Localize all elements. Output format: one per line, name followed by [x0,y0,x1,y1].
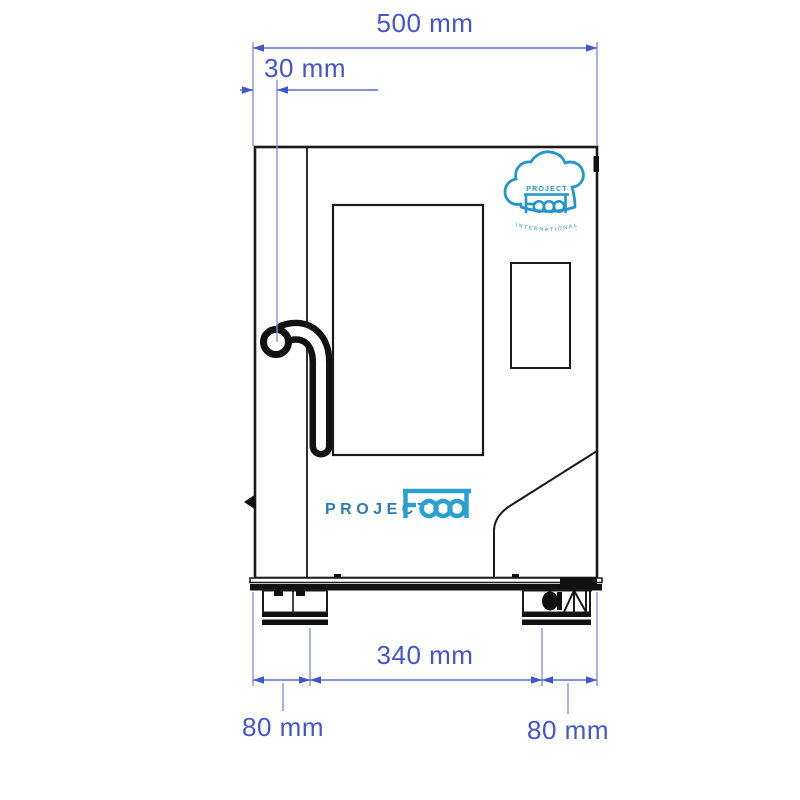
dimension-label-total-width: 500 mm [330,8,520,39]
oven-linework [244,147,602,625]
right-foot [522,591,592,626]
technical-drawing: PROJECT INTERNATIONAL PROJECT [0,0,800,800]
oven-side-view-drawing: PROJECT INTERNATIONAL PROJECT [0,0,800,800]
dimension-label-right-foot-offset: 80 mm [503,715,633,746]
hinge-tick [594,156,600,172]
dimension-label-left-foot-offset: 80 mm [218,712,348,743]
door-project-text: PROJECT [325,501,432,518]
drain-knob [542,592,558,611]
left-foot [262,590,328,625]
dimension-label-handle-offset: 30 mm [245,53,365,84]
latch-wedge [244,494,256,510]
logo-project-text: PROJECT [526,186,567,193]
dimension-label-feet-spacing: 340 mm [335,640,515,671]
handle-pivot [264,330,289,355]
